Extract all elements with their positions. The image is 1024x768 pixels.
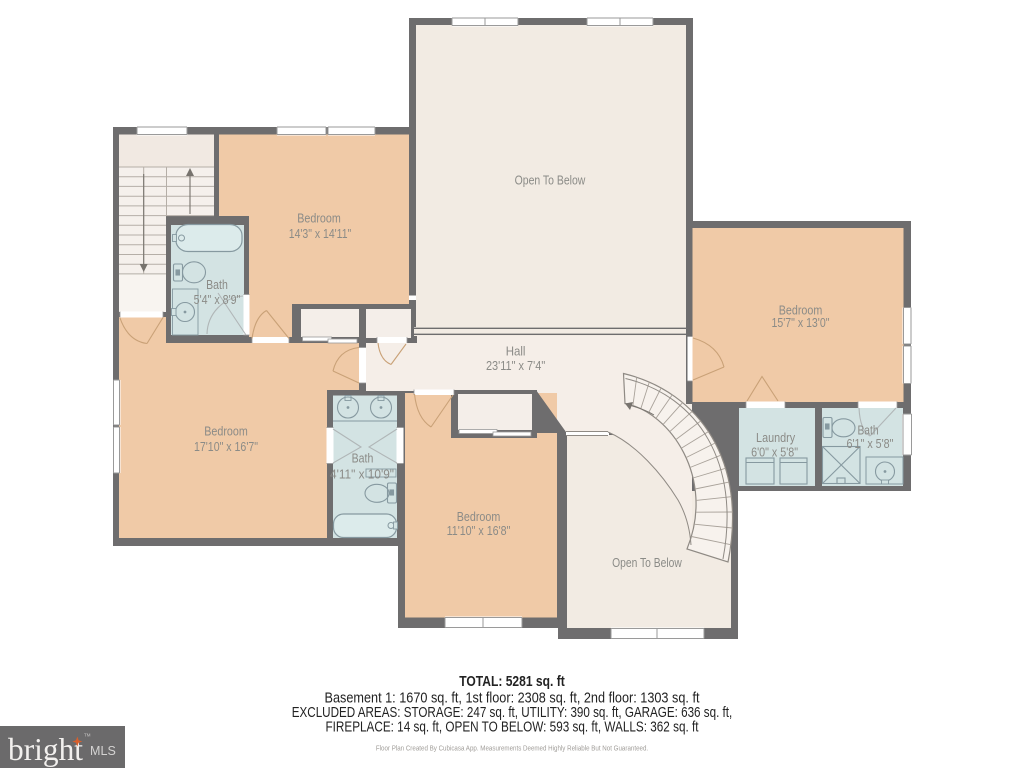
svg-text:Bath: Bath [352,451,374,466]
svg-text:MLS: MLS [90,744,118,758]
svg-text:Open To Below: Open To Below [612,555,682,570]
svg-text:11'10" x 16'8": 11'10" x 16'8" [447,524,511,538]
svg-text:bright: bright [8,731,83,767]
svg-text:Bath: Bath [858,422,879,437]
svg-text:14'3" x 14'11": 14'3" x 14'11" [289,227,352,241]
svg-text:Bath: Bath [206,277,228,292]
svg-text:FIREPLACE: 14 sq. ft, OPEN TO: FIREPLACE: 14 sq. ft, OPEN TO BELOW: 593… [326,719,700,736]
svg-text:Laundry: Laundry [756,430,796,445]
svg-text:TM: TM [84,733,91,738]
svg-text:23'11" x 7'4": 23'11" x 7'4" [486,359,545,373]
svg-text:Bedroom: Bedroom [457,509,501,524]
svg-text:Hall: Hall [506,344,526,359]
svg-text:4'11" x 10'9": 4'11" x 10'9" [330,467,394,481]
svg-text:Bedroom: Bedroom [297,211,341,226]
svg-text:Floor Plan Created By Cubicasa: Floor Plan Created By Cubicasa App. Meas… [376,746,648,753]
svg-text:TOTAL: 5281 sq. ft: TOTAL: 5281 sq. ft [459,674,565,690]
svg-text:5'4" x 8'9": 5'4" x 8'9" [194,293,241,307]
svg-text:6'1" x 5'8": 6'1" x 5'8" [847,437,894,451]
svg-text:Open To Below: Open To Below [515,173,586,188]
svg-text:6'0" x 5'8": 6'0" x 5'8" [751,445,798,459]
svg-text:17'10" x 16'7": 17'10" x 16'7" [194,440,258,454]
svg-text:Bedroom: Bedroom [204,424,248,439]
svg-text:15'7" x 13'0": 15'7" x 13'0" [772,316,830,330]
